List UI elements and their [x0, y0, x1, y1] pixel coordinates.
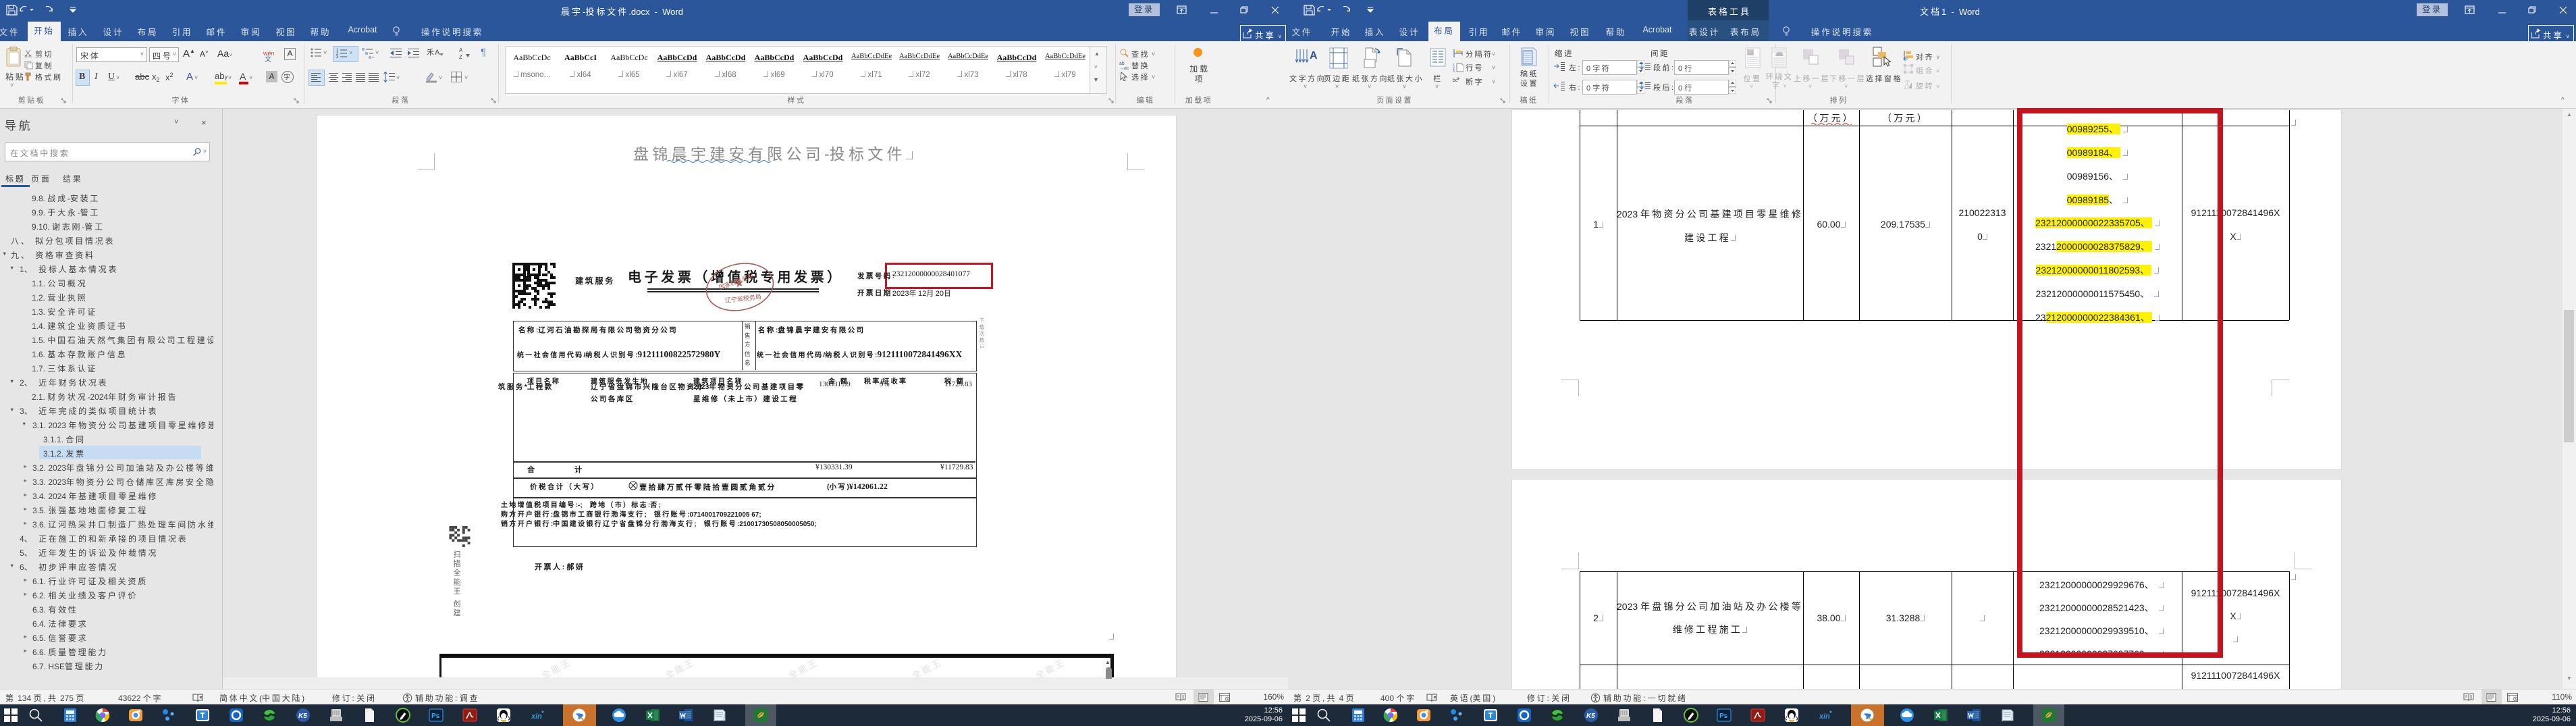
- svg-text:K5: K5: [1586, 712, 1595, 720]
- svg-text:→ac: →ac: [1119, 66, 1129, 70]
- svg-text:禾: 禾: [427, 48, 434, 57]
- svg-text:3: 3: [1453, 70, 1455, 72]
- svg-text:A: A: [1310, 50, 1318, 61]
- svg-text:Ps: Ps: [431, 712, 440, 720]
- svg-text:K5: K5: [298, 712, 307, 720]
- svg-text:辽宁省税务局: 辽宁省税务局: [724, 292, 761, 304]
- svg-text:国家税务总局: 国家税务总局: [718, 271, 755, 291]
- svg-text:A: A: [435, 49, 440, 57]
- svg-text:3: 3: [336, 55, 339, 59]
- svg-text:A: A: [459, 47, 463, 53]
- svg-text:a-: a-: [1457, 77, 1460, 81]
- svg-text:Z: Z: [459, 54, 462, 59]
- svg-text:xin: xin: [1819, 712, 1830, 721]
- svg-text:xin: xin: [531, 712, 542, 721]
- svg-text:Ps: Ps: [1719, 712, 1728, 720]
- svg-text:文: 文: [265, 55, 271, 62]
- svg-text:ab: ab: [1119, 61, 1125, 66]
